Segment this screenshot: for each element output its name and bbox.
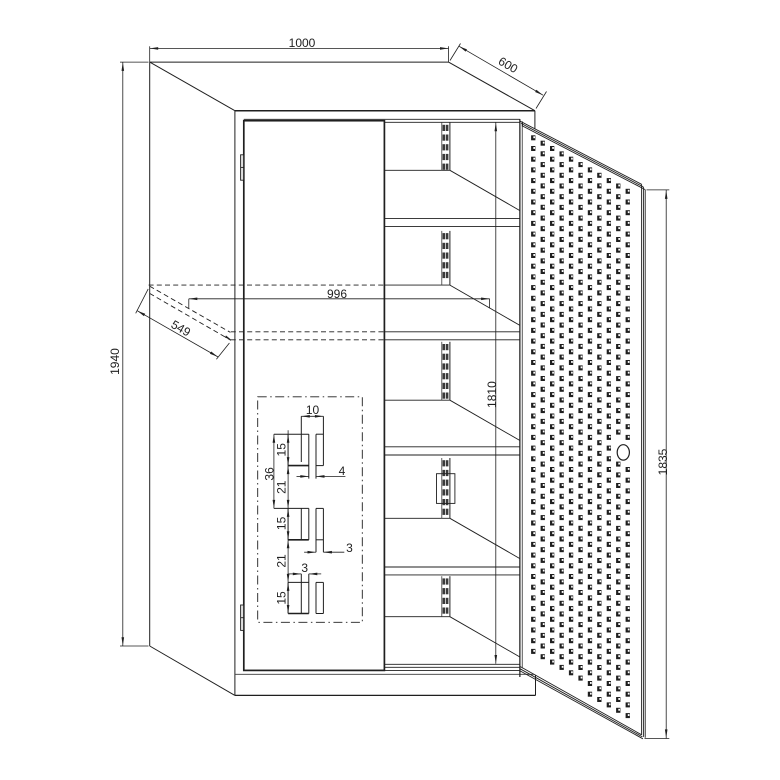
svg-text:15: 15 xyxy=(274,516,288,530)
svg-text:3: 3 xyxy=(301,561,308,575)
svg-text:36: 36 xyxy=(262,467,276,481)
svg-text:21: 21 xyxy=(274,554,288,568)
svg-text:10: 10 xyxy=(306,403,320,417)
svg-text:1835: 1835 xyxy=(656,448,670,475)
svg-text:4: 4 xyxy=(339,464,346,478)
svg-text:1810: 1810 xyxy=(485,381,499,408)
svg-text:15: 15 xyxy=(274,591,288,605)
svg-text:21: 21 xyxy=(274,480,288,494)
svg-text:3: 3 xyxy=(346,541,353,555)
svg-text:1000: 1000 xyxy=(289,36,316,50)
svg-text:996: 996 xyxy=(327,287,347,301)
svg-text:15: 15 xyxy=(274,443,288,457)
svg-text:1940: 1940 xyxy=(108,348,122,375)
